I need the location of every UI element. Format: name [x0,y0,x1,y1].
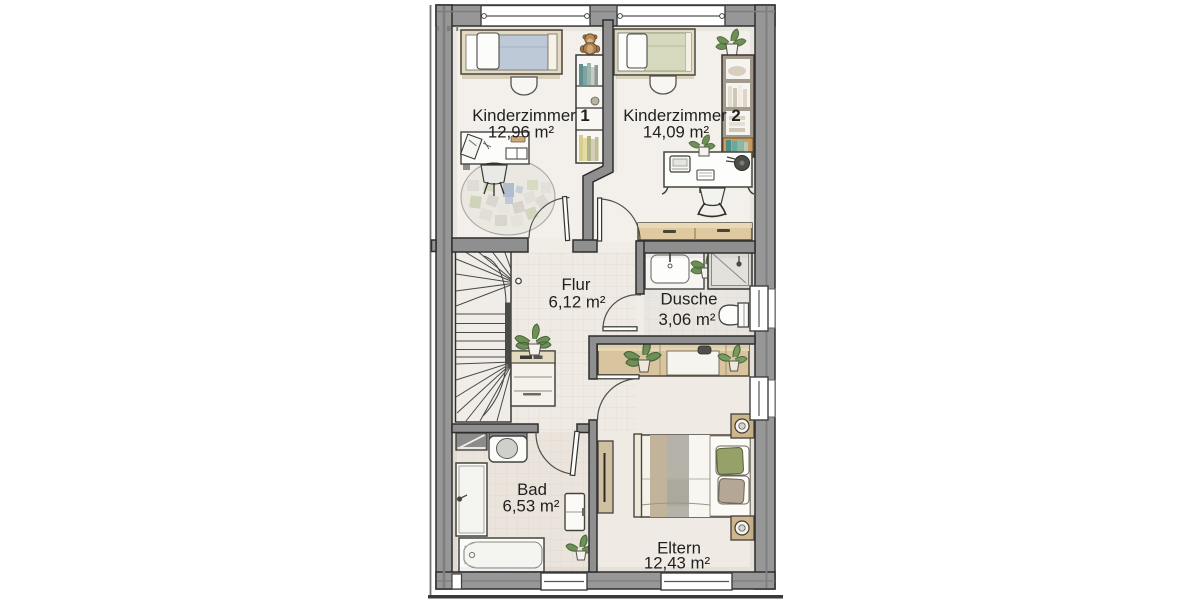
svg-text:6,12 m²: 6,12 m² [549,293,606,312]
svg-text:3,06 m²: 3,06 m² [659,310,716,329]
svg-text:12,96 m²: 12,96 m² [488,123,555,142]
svg-text:6,53 m²: 6,53 m² [503,497,560,516]
svg-text:12,43 m²: 12,43 m² [644,554,711,573]
svg-text:14,09 m²: 14,09 m² [643,123,710,142]
svg-text:Dusche: Dusche [661,290,718,309]
svg-text:Flur: Flur [562,275,591,294]
